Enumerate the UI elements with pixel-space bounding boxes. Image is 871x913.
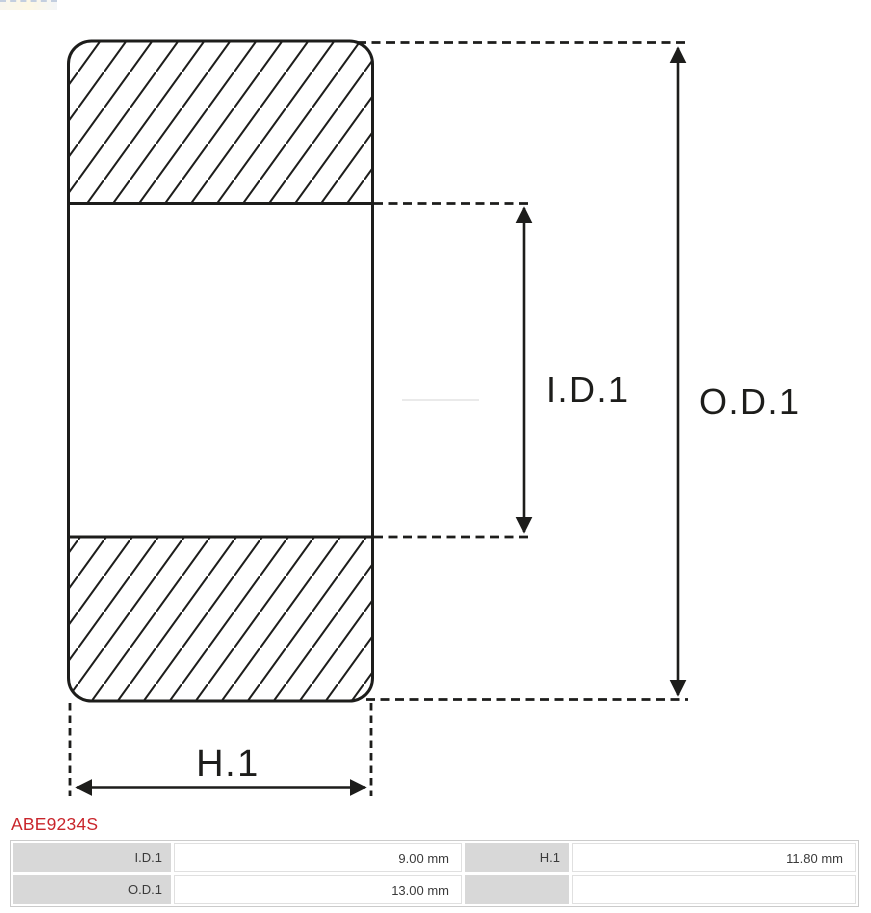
spec-row: O.D.1 13.00 mm: [13, 875, 856, 904]
spec-row: I.D.1 9.00 mm H.1 11.80 mm: [13, 843, 856, 872]
id1-label: I.D.1: [546, 369, 630, 410]
spec-value-h1: 11.80 mm: [572, 843, 856, 872]
spec-label-h1: H.1: [465, 843, 569, 872]
hatch-bottom-band: [69, 537, 373, 701]
spec-value-empty: [572, 875, 856, 904]
spec-label-id1: I.D.1: [13, 843, 171, 872]
spec-label-empty: [465, 875, 569, 904]
hatch-top-band: [69, 41, 373, 204]
od1-label: O.D.1: [699, 381, 801, 422]
h1-label: H.1: [196, 743, 260, 785]
spec-value-od1: 13.00 mm: [174, 875, 462, 904]
spec-table: I.D.1 9.00 mm H.1 11.80 mm O.D.1 13.00 m…: [10, 840, 859, 907]
part-number-link[interactable]: ABE9234S: [11, 813, 98, 835]
spec-value-id1: 9.00 mm: [174, 843, 462, 872]
product-diagram-page: I.D.1 O.D.1 H.1 ABE9234S I.D.1 9.00 mm H…: [0, 0, 871, 913]
bearing-diagram: I.D.1 O.D.1 H.1: [0, 0, 871, 808]
bearing-cross-section: [69, 41, 480, 701]
spec-label-od1: O.D.1: [13, 875, 171, 904]
